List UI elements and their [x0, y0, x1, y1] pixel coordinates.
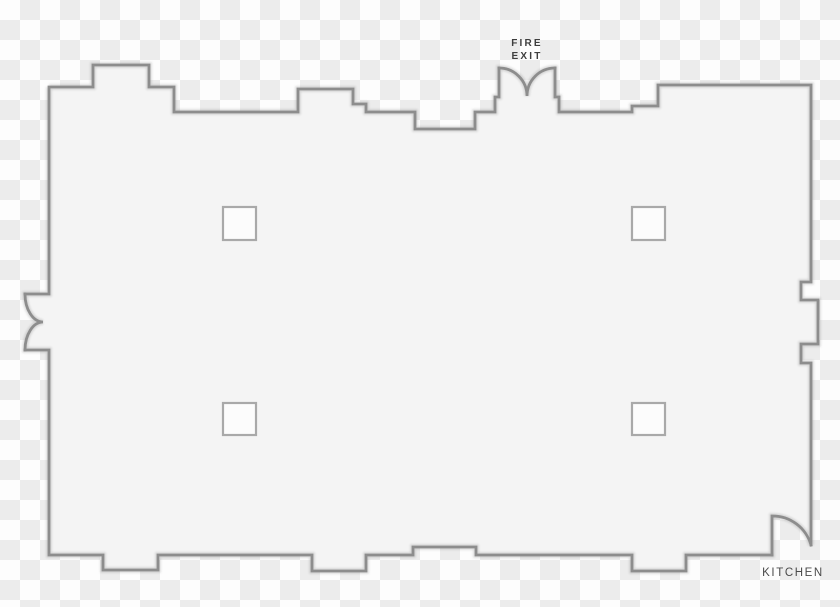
pillar-square-bottom-left — [223, 403, 256, 435]
room-floor — [25, 65, 818, 571]
pillar-square-top-right — [632, 207, 665, 240]
kitchen-label: KITCHEN — [756, 567, 830, 579]
fire-exit-label: FIRE EXIT — [492, 37, 562, 63]
transparency-checkerboard-background: FIRE EXIT KITCHEN — [0, 0, 840, 607]
pillar-square-bottom-right — [632, 403, 665, 435]
floor-plan-drawing — [0, 0, 840, 607]
fire-exit-label-line1: FIRE — [492, 37, 562, 50]
fire-exit-label-line2: EXIT — [492, 50, 562, 63]
pillar-square-top-left — [223, 207, 256, 240]
